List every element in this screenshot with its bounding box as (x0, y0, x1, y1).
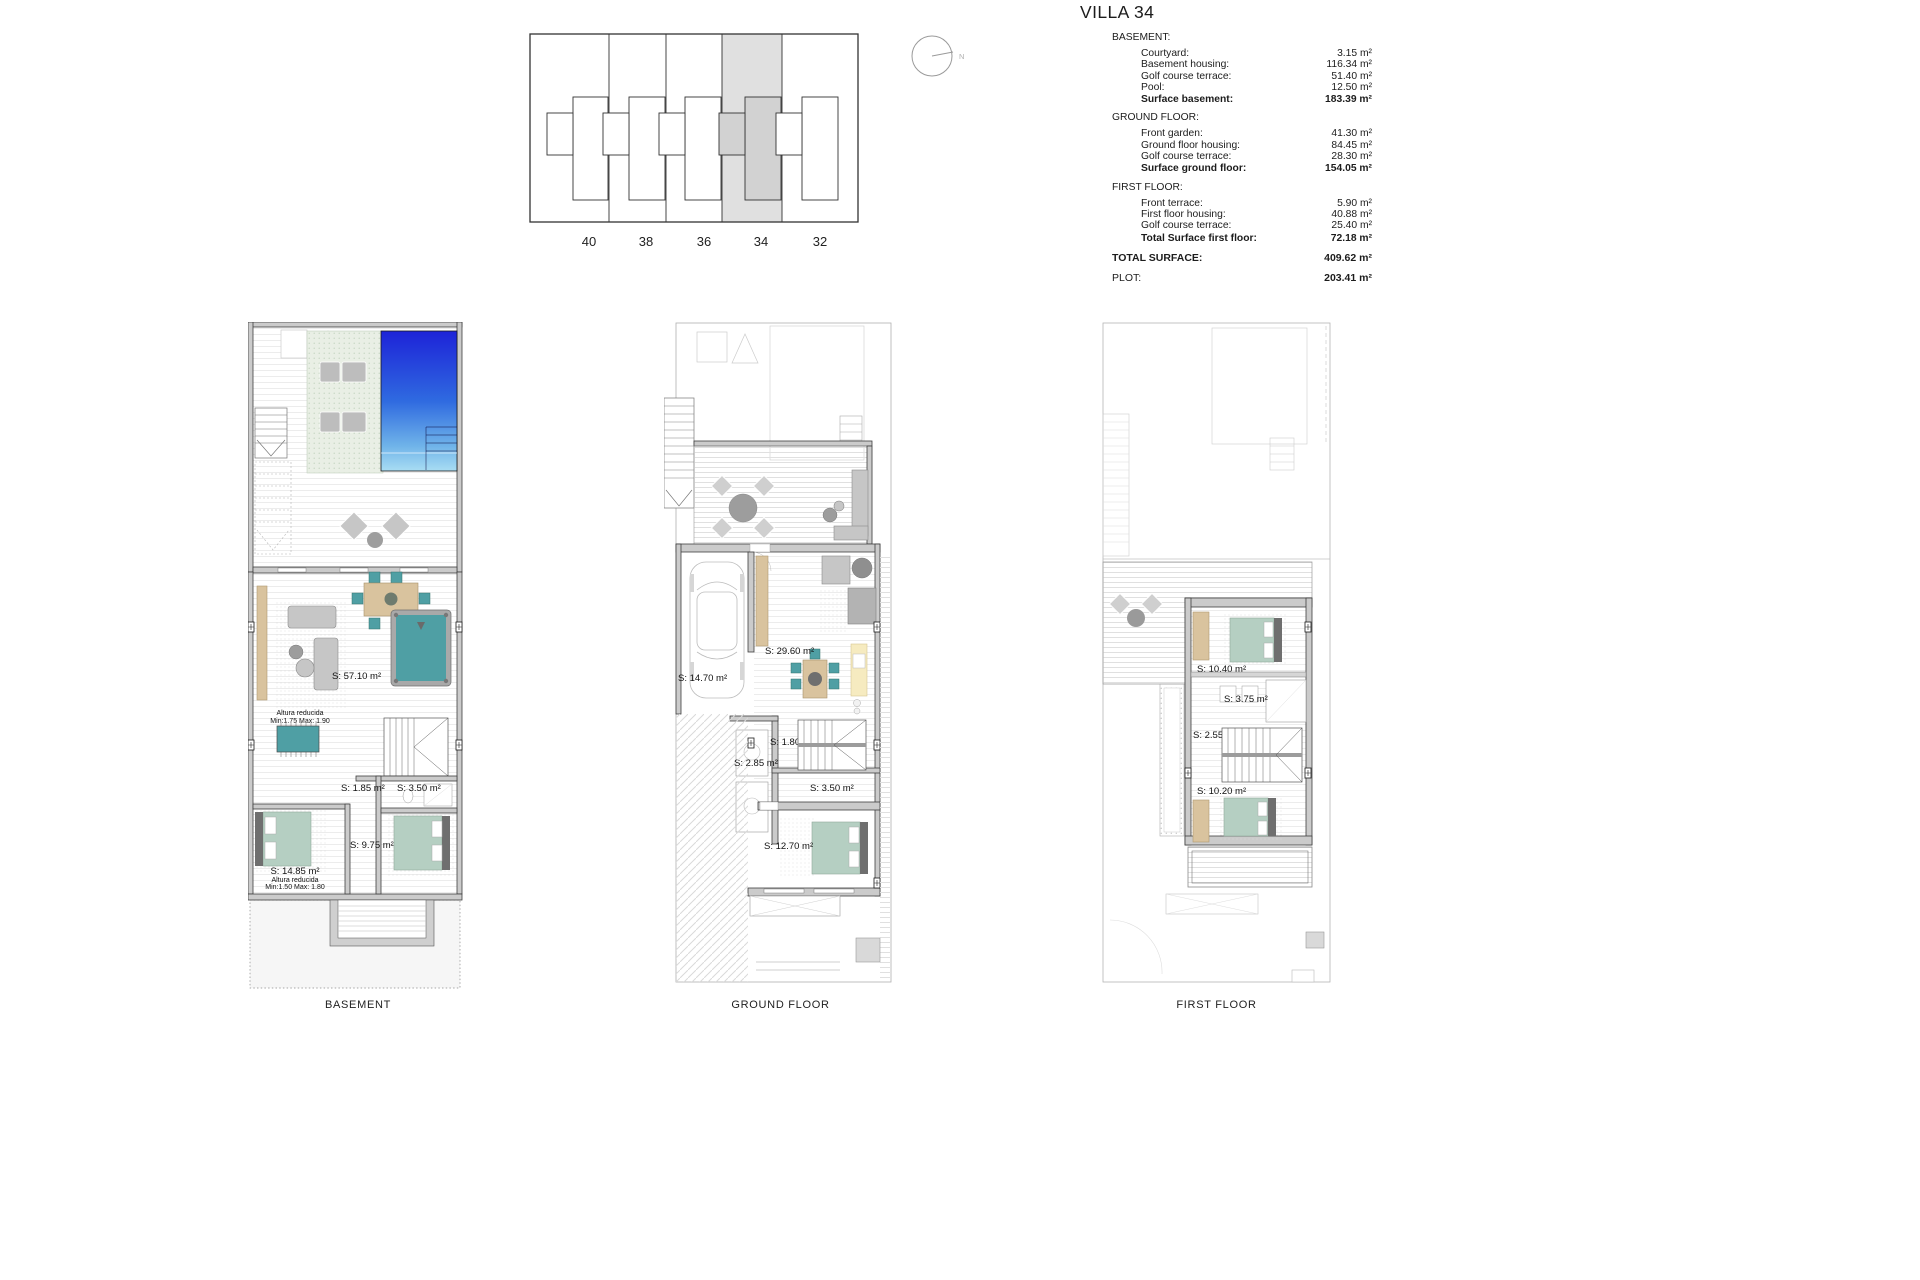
billiard-table (391, 610, 451, 686)
entry-block (1306, 932, 1324, 948)
surface-total-row: Total Surface first floor:72.18 m² (1141, 233, 1372, 244)
reduced-height-note: Min:1.75 Max: 1.90 (270, 718, 330, 725)
wall (457, 572, 462, 894)
main-stairs (798, 720, 866, 770)
total-surface-row: TOTAL SURFACE:409.62 m² (1112, 253, 1372, 264)
sun-deck (307, 331, 383, 473)
sun-lounger (320, 412, 366, 432)
side-walkway (880, 554, 891, 982)
surface-row: Front garden:41.30 m² (1141, 128, 1372, 139)
section-name: FIRST FLOOR: (1112, 182, 1372, 193)
surface-row: Golf course terrace:51.40 m² (1141, 71, 1372, 82)
sink (853, 654, 865, 668)
bed-double (386, 812, 454, 876)
room-label-bathroom: S: 3.75 m² (1224, 694, 1268, 705)
wardrobe (1193, 612, 1209, 660)
site-unit-label-38: 38 (639, 234, 653, 249)
wall (1185, 598, 1191, 845)
surface-total-row: Surface basement:183.39 m² (1141, 94, 1372, 105)
main-stairs (384, 718, 448, 776)
section-name: GROUND FLOOR: (1112, 112, 1372, 123)
bedroom-door (760, 802, 778, 810)
site-plan: 40 38 36 34 32 (528, 28, 872, 258)
wall (772, 716, 778, 844)
wardrobe (756, 556, 768, 646)
room-label-store-b: S: 3.50 m² (397, 783, 441, 794)
sun-lounger (320, 362, 366, 382)
section-ground-floor: GROUND FLOOR: Front garden:41.30 m² Grou… (1080, 112, 1372, 174)
section-first-floor: FIRST FLOOR: Front terrace:5.90 m² First… (1080, 182, 1372, 244)
basement-interior: S: 57.10 m² Altura reducida Min:1.75 Max… (248, 567, 462, 900)
section-basement: BASEMENT: Courtyard:3.15 m² Basement hou… (1080, 32, 1372, 105)
wall (694, 441, 872, 446)
planter (697, 332, 727, 362)
room-label-garage: S: 14.70 m² (678, 673, 727, 684)
entry-step (1292, 970, 1314, 982)
wall-anchor (748, 738, 754, 748)
surface-row: First floor housing:40.88 m² (1141, 209, 1372, 220)
room-label-bedroom2: S: 10.20 m² (1197, 786, 1246, 797)
basement-floor-plan: S: 57.10 m² Altura reducida Min:1.75 Max… (248, 322, 468, 1010)
section-name: BASEMENT: (1112, 32, 1372, 43)
site-unit-label-34: 34 (754, 234, 768, 249)
wardrobe (1193, 800, 1209, 842)
caption-basement: BASEMENT (248, 999, 468, 1011)
site-house-footprints (547, 97, 838, 200)
reduced-height-note: Altura reducida (271, 877, 318, 884)
basement-courtyard (248, 322, 462, 572)
surface-row: Golf course terrace:28.30 m² (1141, 151, 1372, 162)
reduced-height-note: Min:1.50 Max: 1.80 (265, 884, 325, 891)
wall (1306, 598, 1312, 845)
bed-double (1218, 796, 1282, 840)
room-label-store-a: S: 1.85 m² (341, 783, 385, 794)
wall-anchor (248, 740, 254, 750)
surface-row: Front terrace:5.90 m² (1141, 198, 1372, 209)
exterior-stairs (664, 398, 694, 508)
room-label-bedroom: S: 12.70 m² (764, 841, 813, 852)
entry-block (856, 938, 880, 962)
floor-plan-sheet: 40 38 36 34 32 N VILLA 34 BASEMENT: Cour… (0, 0, 1920, 1280)
wall (676, 544, 681, 714)
wall (248, 572, 253, 894)
pool (381, 331, 457, 471)
room-label-store: S: 3.50 m² (810, 783, 854, 794)
ground-deck-terrace (694, 441, 872, 544)
foosball-table (277, 721, 319, 757)
wall (248, 322, 253, 572)
site-unit-label-40: 40 (582, 234, 596, 249)
window (278, 568, 428, 572)
wall (1185, 598, 1312, 607)
wall (1191, 672, 1306, 677)
sideboard (257, 586, 267, 700)
bed-double (254, 808, 328, 874)
wall-anchor (1185, 768, 1191, 778)
wall-anchor (456, 622, 462, 632)
villa-title: VILLA 34 (1080, 2, 1372, 23)
surface-total-row: Surface ground floor:154.05 m² (1141, 163, 1372, 174)
site-unit-label-32: 32 (813, 234, 827, 249)
surface-row: Golf course terrace:25.40 m² (1141, 220, 1372, 231)
room-label-living: S: 29.60 m² (765, 646, 814, 657)
surface-row: Pool:12.50 m² (1141, 82, 1372, 93)
wall-anchor (874, 878, 880, 888)
wall-anchor (1305, 622, 1311, 632)
wall-anchor (874, 740, 880, 750)
wall-anchor (456, 740, 462, 750)
courtyard-stairs (255, 408, 287, 458)
wall (457, 322, 462, 572)
wall (248, 894, 462, 900)
main-stairs (1222, 728, 1302, 782)
porch-skylight (750, 896, 840, 916)
planter (281, 330, 307, 358)
round-table (367, 532, 383, 548)
caption-first-floor: FIRST FLOOR (1100, 999, 1333, 1011)
reduced-height-note: Altura reducida (276, 710, 323, 717)
surface-summary-panel: VILLA 34 BASEMENT: Courtyard:3.15 m² Bas… (1080, 2, 1372, 284)
surface-row: Basement housing:116.34 m² (1141, 59, 1372, 70)
wall-anchor (1305, 768, 1311, 778)
plot-row: PLOT:203.41 m² (1112, 273, 1372, 284)
first-house: S: 10.40 m² S: 3.75 m² S: 2.55 m² S: 10.… (1185, 598, 1312, 845)
wall-anchor (874, 622, 880, 632)
first-void-strip (1160, 684, 1184, 836)
surface-row: Courtyard:3.15 m² (1141, 48, 1372, 59)
wall (676, 544, 880, 552)
entrance-door (750, 544, 770, 552)
wall (356, 776, 457, 781)
kitchen-appliances (818, 556, 876, 632)
surface-row: Ground floor housing:84.45 m² (1141, 140, 1372, 151)
round-table (1127, 609, 1145, 627)
basement-lightwell (330, 900, 434, 946)
first-floor-plan: S: 10.40 m² S: 3.75 m² S: 2.55 m² S: 10.… (1100, 322, 1333, 1010)
north-label: N (959, 52, 964, 61)
wall-anchor (248, 622, 254, 632)
wall (748, 552, 754, 652)
round-table (729, 494, 757, 522)
north-compass-icon: N (905, 30, 975, 86)
bed-double (1224, 614, 1286, 666)
caption-ground-floor: GROUND FLOOR (664, 999, 897, 1011)
room-label-bedroom: S: 14.85 m² (270, 866, 319, 877)
room-label-living: S: 57.10 m² (332, 671, 381, 682)
wall (248, 322, 462, 327)
site-unit-label-36: 36 (697, 234, 711, 249)
ground-floor-plan: S: 14.70 m² S: 29.60 m² S: 1.80 m² S: 2.… (664, 322, 897, 1010)
